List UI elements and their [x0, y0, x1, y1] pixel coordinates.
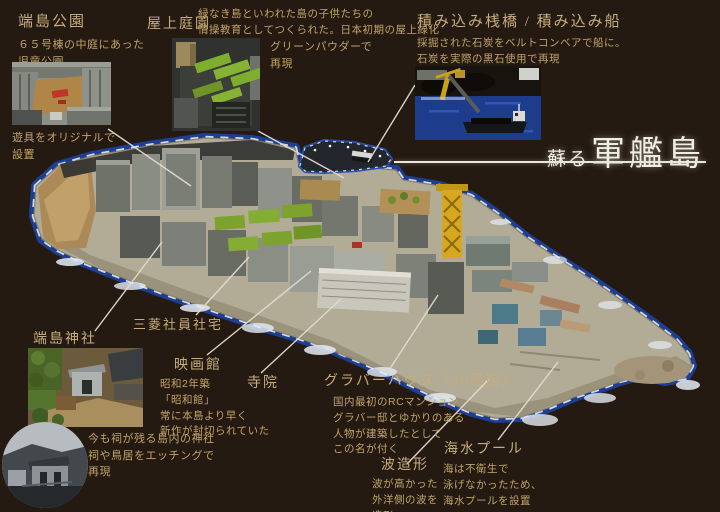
title-underline: [394, 161, 706, 163]
leader-line-loading-pier: [368, 85, 415, 162]
heading-loading-pier: 積み込み桟橋 / 積み込み船: [417, 13, 622, 32]
heading-hashima-park: 端島公園: [18, 13, 86, 32]
leader-line-mitsubishi-housing: [196, 257, 249, 315]
leader-line-hashima-park: [108, 129, 191, 186]
leader-line-cinema: [207, 271, 311, 355]
heading-wave-sculpting: 波造形: [381, 457, 429, 475]
photo-shrine-detail: [2, 422, 88, 508]
heading-hashima-shrine: 端島神社: [33, 331, 97, 349]
heading-glover-house: グラバーハウス（30号館）: [324, 373, 518, 391]
page-title: 蘇る 軍艦島: [547, 126, 705, 175]
photo-loading-pier: [415, 66, 541, 140]
photo-hashima-park: [12, 62, 111, 125]
leader-line-rooftop-garden: [258, 131, 344, 178]
heading-cinema: 映画館: [174, 357, 222, 375]
leader-line-glover-house: [389, 295, 438, 370]
title-main: 軍艦島: [591, 126, 705, 175]
body-loading-pier: 採掘された石炭をベルトコンベアで船に。 石炭を実際の黒石使用で再現: [417, 36, 626, 68]
title-prefix: 蘇る: [547, 144, 589, 171]
leader-line-temple: [261, 299, 341, 373]
gunkanjima-model-poster: 蘇る 軍艦島 端島公園 ６５号棟の中庭にあった 児童公園 遊具をオリジナルで 設…: [0, 0, 720, 512]
photo-hashima-shrine: [28, 348, 143, 427]
body-seawater-pool: 海は不衛生で 泳げなかったため、 海水プールを設置: [443, 462, 542, 509]
photo-rooftop-garden: [172, 38, 260, 131]
heading-mitsubishi-housing: 三菱社員社宅: [133, 317, 223, 333]
body-wave-sculpting: 波が高かった 外洋側の波を 造形: [372, 477, 438, 512]
body-rooftop-garden: 緑なき島といわれた島の子供たちの 情操教育としてつくられた。日本初期の屋上緑化: [198, 7, 439, 39]
heading-temple: 寺院: [247, 375, 279, 393]
heading-seawater-pool: 海水プール: [444, 441, 524, 459]
caption-rooftop-garden: グリーンパウダーで 再現: [270, 39, 372, 72]
caption-hashima-park: 遊具をオリジナルで 設置: [12, 130, 116, 163]
